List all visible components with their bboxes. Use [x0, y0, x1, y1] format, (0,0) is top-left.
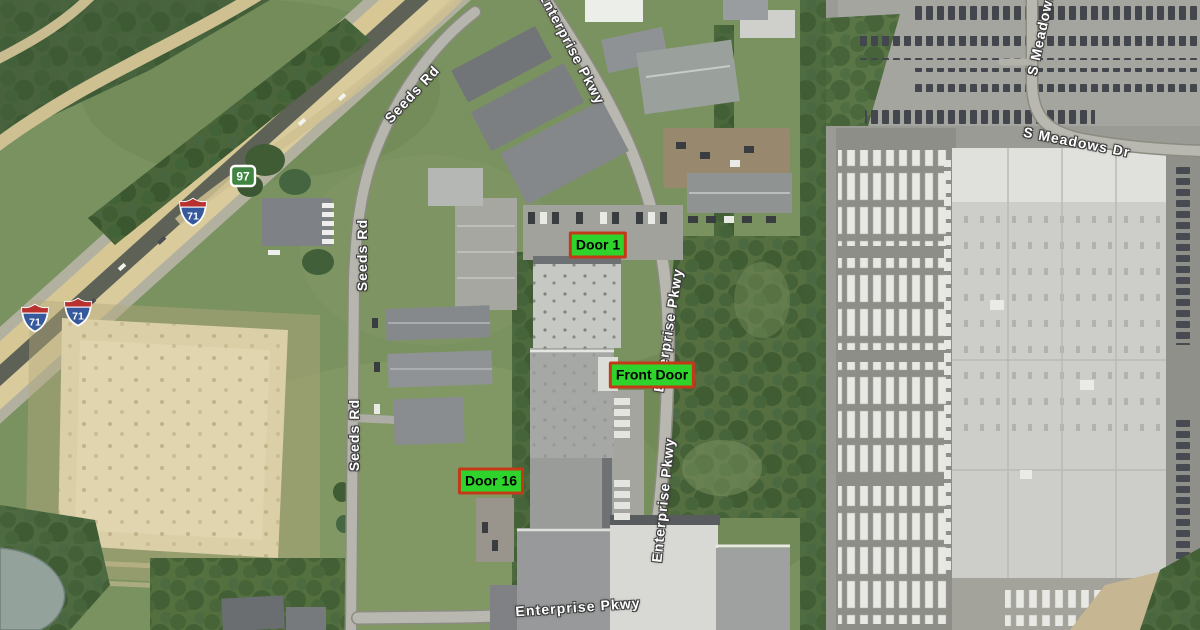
marker-front-door[interactable]: Front Door — [609, 362, 695, 389]
svg-text:71: 71 — [72, 311, 84, 323]
road-label-seeds-rd: Seeds Rd — [354, 219, 370, 292]
interstate-71-shield: 71 — [179, 197, 207, 227]
route-97-shield: 97 — [229, 164, 257, 188]
svg-text:97: 97 — [236, 170, 250, 184]
road-label-seeds-rd: Seeds Rd — [346, 399, 362, 472]
marker-door-1[interactable]: Door 1 — [569, 232, 627, 259]
interstate-71-shield: 71 — [64, 297, 92, 327]
distribution-center — [826, 0, 1200, 630]
map-canvas[interactable]: 71 71 71 97 Seeds Rd Seeds Rd Seeds Rd E… — [0, 0, 1200, 630]
svg-text:71: 71 — [29, 317, 41, 329]
interstate-71-shield: 71 — [21, 303, 49, 333]
marker-door-16[interactable]: Door 16 — [458, 468, 524, 495]
svg-text:71: 71 — [187, 211, 199, 223]
